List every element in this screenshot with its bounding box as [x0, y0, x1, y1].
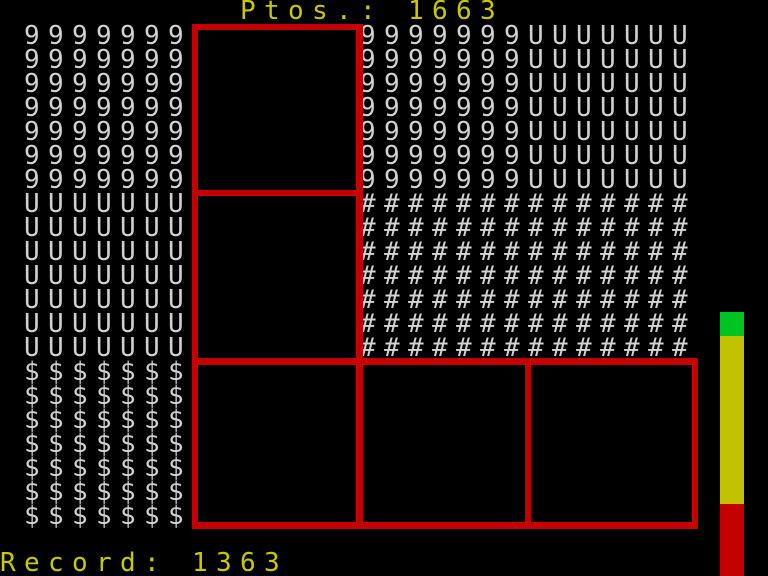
block-hashes: ############## ############## ##########…: [360, 192, 696, 360]
box-border-horizontal-bottom: [192, 522, 698, 529]
block-nines-left: 9999999 9999999 9999999 9999999 9999999 …: [24, 24, 192, 192]
box-border-horizontal-row2: [192, 358, 698, 365]
box-border-horizontal-row1: [192, 190, 363, 196]
score-display: Ptos.:1663: [240, 0, 504, 23]
block-us-left: UUUUUUU UUUUUUU UUUUUUU UUUUUUU UUUUUUU …: [24, 192, 192, 360]
status-meter: [720, 312, 744, 576]
block-dollars-left: $$$$$$$ $$$$$$$ $$$$$$$ $$$$$$$ $$$$$$$ …: [24, 360, 192, 528]
record-label: Record:: [0, 548, 168, 576]
block-nines-right: 9999999 9999999 9999999 9999999 9999999 …: [360, 24, 528, 192]
box-border-vertical-left: [192, 24, 198, 528]
box-border-horizontal-top: [192, 24, 363, 30]
record-display: Record:1363: [0, 551, 288, 575]
box-border-vertical-divider-bottom: [525, 358, 531, 528]
meter-segment-green: [720, 312, 744, 336]
meter-segment-red: [720, 504, 744, 576]
box-border-vertical-right: [692, 358, 698, 528]
block-us-right: UUUUUUU UUUUUUU UUUUUUU UUUUUUU UUUUUUU …: [528, 24, 696, 192]
game-screen: Ptos.:1663 9999999 9999999 9999999 99999…: [0, 0, 768, 576]
record-value: 1363: [192, 548, 288, 576]
meter-segment-yellow: [720, 336, 744, 504]
box-border-vertical-middle: [356, 24, 363, 528]
